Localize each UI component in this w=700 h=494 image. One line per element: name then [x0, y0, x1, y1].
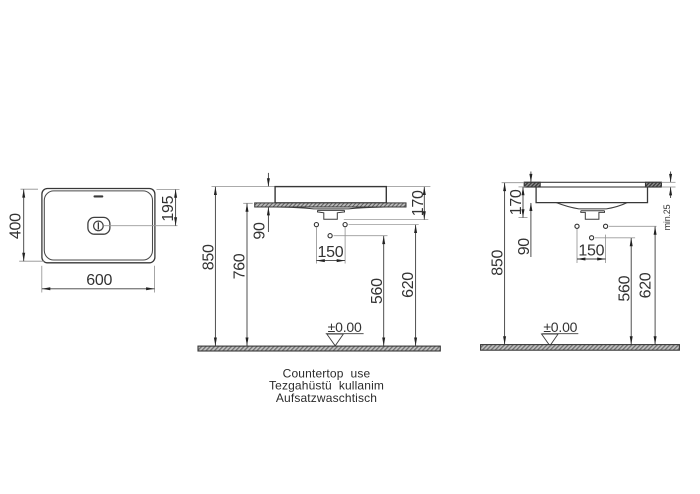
svg-text:90: 90 [516, 238, 533, 256]
svg-text:150: 150 [578, 243, 604, 260]
svg-text:90: 90 [252, 222, 269, 240]
svg-text:150: 150 [318, 244, 344, 261]
svg-text:600: 600 [86, 272, 112, 289]
svg-text:170: 170 [508, 189, 525, 215]
svg-text:Aufsatzwaschtisch: Aufsatzwaschtisch [276, 391, 377, 405]
svg-text:620: 620 [638, 272, 655, 298]
svg-text:620: 620 [400, 272, 417, 298]
svg-text:560: 560 [617, 275, 634, 301]
svg-text:195: 195 [160, 195, 177, 221]
svg-text:±0.00: ±0.00 [328, 319, 362, 335]
svg-text:760: 760 [232, 253, 249, 279]
svg-text:min.25: min.25 [662, 204, 672, 230]
svg-text:±0.00: ±0.00 [543, 319, 577, 335]
svg-text:560: 560 [369, 278, 386, 304]
svg-text:850: 850 [489, 250, 506, 276]
svg-text:400: 400 [8, 213, 25, 239]
svg-text:850: 850 [200, 244, 217, 270]
svg-text:170: 170 [410, 190, 427, 216]
